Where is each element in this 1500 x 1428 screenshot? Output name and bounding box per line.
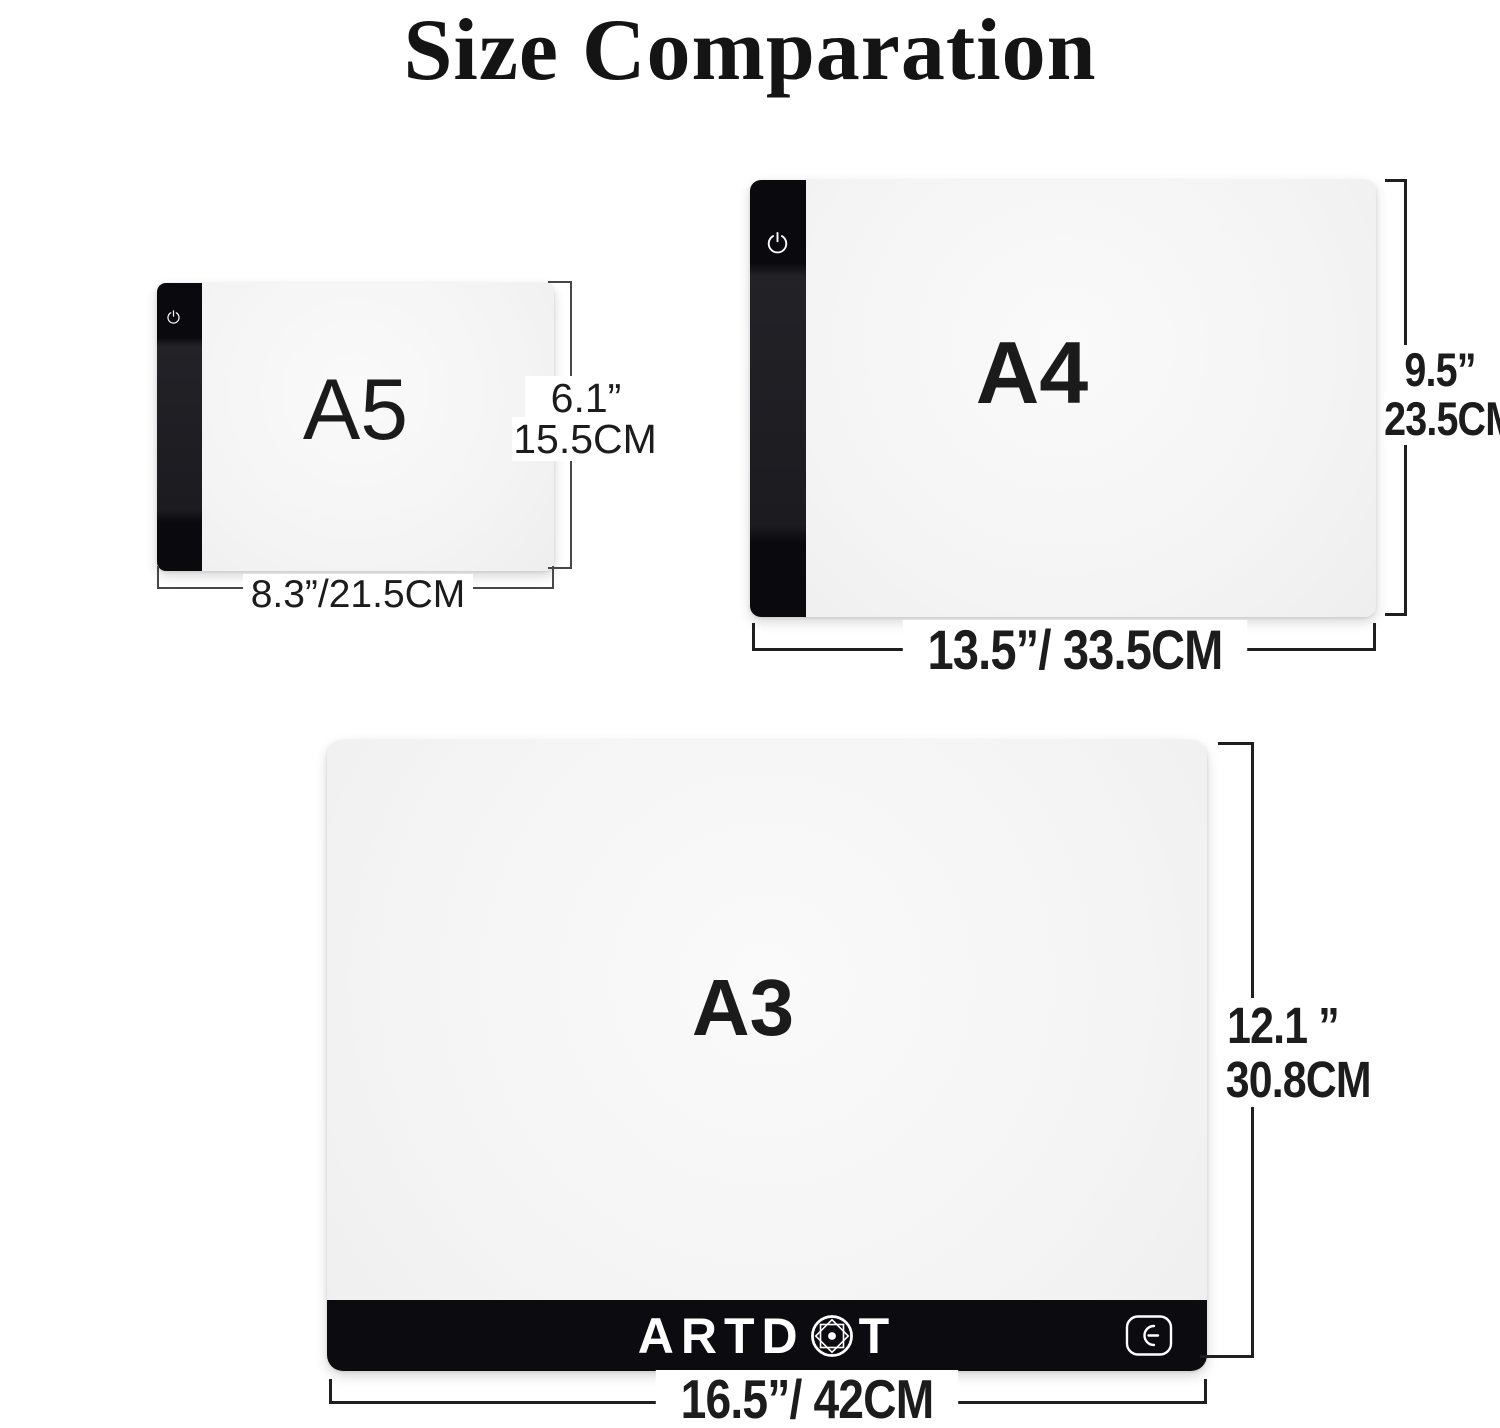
- a3-size-label: A3: [327, 740, 1207, 1371]
- a3-height-inches: 12.1 ”: [1216, 998, 1350, 1053]
- a5-height-tick-top: [548, 281, 571, 283]
- a3-brand-bar: ARTD T: [327, 1300, 1207, 1371]
- a3-light-pad: A3 ARTD T: [327, 740, 1207, 1371]
- a5-size-label: A5: [157, 283, 554, 571]
- a3-width-tick-left: [329, 1379, 332, 1404]
- a5-width-label: 8.3”/21.5CM: [243, 574, 473, 616]
- a4-width-tick-right: [1373, 623, 1376, 651]
- a5-width-tick-right: [552, 566, 554, 589]
- power-button-icon: [1125, 1314, 1173, 1357]
- a5-height-cm: 15.5CM: [512, 417, 658, 461]
- a5-height-inches: 6.1”: [525, 376, 647, 420]
- a5-light-pad: A5: [157, 283, 554, 571]
- brand-text-suffix: T: [859, 1311, 897, 1361]
- a4-height-tick-bottom: [1385, 613, 1407, 616]
- a5-width-tick-left: [157, 566, 159, 589]
- page-title: Size Comparation: [0, 0, 1500, 101]
- a4-width-tick-left: [752, 623, 755, 651]
- size-comparison-figure: Size Comparation A5 6.1” 15.5CM 8.3”/21.…: [0, 0, 1500, 1428]
- a4-height-inches: 9.5”: [1400, 345, 1481, 396]
- a3-height-tick-top: [1218, 742, 1254, 745]
- brand-logo: ARTD T: [638, 1311, 896, 1361]
- gem-icon: [809, 1313, 855, 1359]
- a3-height-cm: 30.8CM: [1226, 1052, 1370, 1107]
- a4-width-label: 13.5”/ 33.5CM: [903, 620, 1247, 680]
- a3-width-label: 16.5”/ 42CM: [656, 1370, 958, 1428]
- a3-width-tick-right: [1204, 1379, 1207, 1404]
- a4-size-label: A4: [750, 180, 1376, 617]
- a4-height-tick-top: [1385, 179, 1407, 182]
- brand-text-prefix: ARTD: [638, 1311, 805, 1361]
- a3-height-tick-bottom: [1200, 1355, 1254, 1358]
- a4-height-cm: 23.5CM: [1384, 394, 1490, 445]
- a4-light-pad: A4: [750, 180, 1376, 617]
